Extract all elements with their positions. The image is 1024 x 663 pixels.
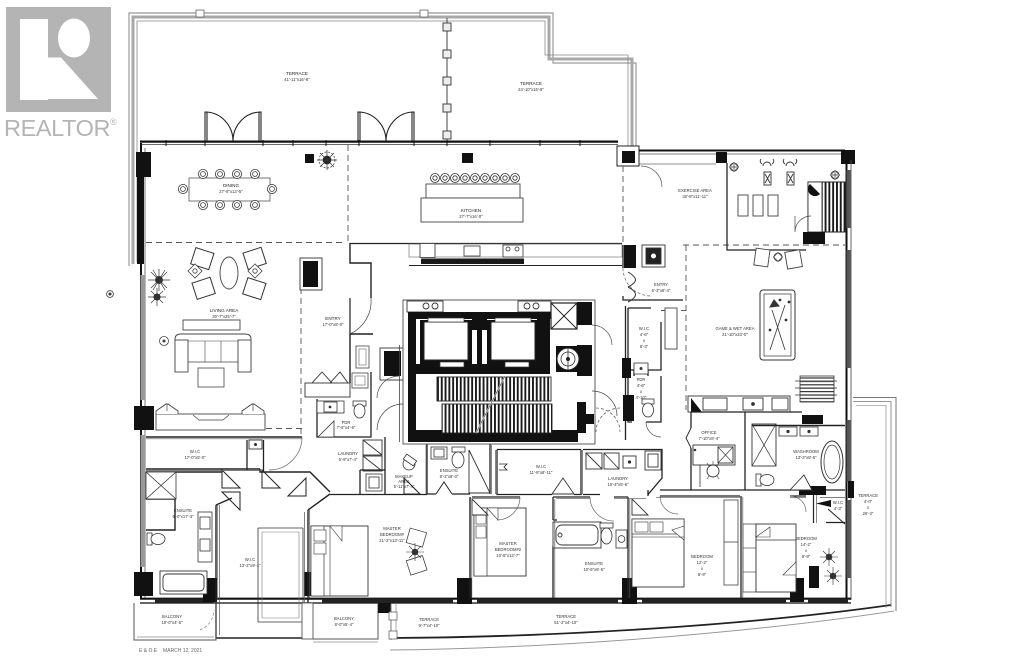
svg-text:W.I.C: W.I.C (536, 464, 546, 469)
svg-text:BEDROOM#: BEDROOM# (380, 532, 405, 537)
svg-text:BALCONY: BALCONY (162, 614, 182, 619)
svg-text:TERRACE: TERRACE (556, 614, 576, 619)
svg-text:TERRACE: TERRACE (858, 493, 878, 498)
svg-text:24'-10"x16'-8": 24'-10"x16'-8" (518, 87, 544, 92)
svg-text:8'-0"x5'-4": 8'-0"x5'-4" (335, 622, 354, 627)
svg-text:10'-6"x6'-6": 10'-6"x6'-6" (583, 567, 605, 572)
svg-text:27'-8"x13'-5": 27'-8"x13'-5" (219, 189, 243, 194)
svg-text:21'-2"x13'-11": 21'-2"x13'-11" (379, 538, 405, 543)
svg-text:LAUNDRY: LAUNDRY (608, 476, 628, 481)
svg-text:6'-3"x8'-4": 6'-3"x8'-4" (652, 288, 671, 293)
svg-text:DINING: DINING (223, 183, 240, 188)
svg-text:5'-9"x7'-4": 5'-9"x7'-4" (339, 457, 358, 462)
svg-text:8'-3": 8'-3" (640, 344, 649, 349)
svg-text:27'-7"x16'-0": 27'-7"x16'-0" (459, 214, 483, 219)
svg-text:E & O.E: E & O.E (139, 648, 158, 654)
svg-text:51'-2"x4'-10": 51'-2"x4'-10" (554, 620, 578, 625)
svg-text:17'-0"x5'-0": 17'-0"x5'-0" (184, 455, 206, 460)
svg-text:BALCONY: BALCONY (334, 616, 354, 621)
svg-text:BEDROOM: BEDROOM (691, 554, 713, 559)
svg-text:10'-4"x5'-6": 10'-4"x5'-6" (607, 482, 629, 487)
svg-text:REALTOR®: REALTOR® (4, 115, 117, 141)
svg-text:WASHROOM: WASHROOM (793, 449, 819, 454)
svg-text:ENSUITE: ENSUITE (585, 561, 603, 566)
svg-text:13'-3"x8'-6": 13'-3"x8'-6" (795, 455, 817, 460)
svg-text:4'-3": 4'-3" (834, 506, 843, 511)
svg-text:LIVING AREA: LIVING AREA (210, 308, 240, 313)
svg-text:9'-7"x4'-10": 9'-7"x4'-10" (418, 623, 440, 628)
svg-text:14'-2": 14'-2" (801, 542, 812, 547)
svg-text:EXERCISE AREA: EXERCISE AREA (678, 188, 712, 193)
svg-text:BEDROOM: BEDROOM (795, 536, 817, 541)
svg-text:21'-10"x23'-0": 21'-10"x23'-0" (722, 332, 748, 337)
svg-text:5'-11"x7'-4": 5'-11"x7'-4" (394, 484, 415, 489)
svg-text:11'-9"x8'-11": 11'-9"x8'-11" (530, 470, 553, 475)
svg-text:6'-0"x17'-3": 6'-0"x17'-3" (172, 514, 194, 519)
svg-text:8'-9": 8'-9" (698, 572, 707, 577)
svg-text:13'-2"x9'-1": 13'-2"x9'-1" (239, 563, 261, 568)
svg-text:TERRACE: TERRACE (419, 617, 439, 622)
svg-text:8'-9": 8'-9" (802, 554, 811, 559)
svg-text:30'-8"x11'-11": 30'-8"x11'-11" (682, 194, 708, 199)
svg-text:PDR: PDR (637, 377, 646, 382)
svg-text:26'-3": 26'-3" (863, 511, 874, 516)
svg-text:4'-6": 4'-6" (640, 332, 649, 337)
svg-text:BEDROOM#2: BEDROOM#2 (495, 547, 522, 552)
svg-text:4'-0": 4'-0" (864, 499, 873, 504)
svg-text:W.I.C: W.I.C (833, 500, 843, 505)
svg-text:7'-10"x8'-4": 7'-10"x8'-4" (698, 436, 720, 441)
svg-text:OFFICE: OFFICE (701, 430, 717, 435)
svg-text:TERRACE: TERRACE (520, 81, 542, 86)
svg-text:4'-6": 4'-6" (637, 383, 646, 388)
svg-text:MASTER: MASTER (383, 526, 400, 531)
svg-text:MARCH 12, 2021: MARCH 12, 2021 (163, 648, 202, 654)
svg-text:30'-7"x25'-7": 30'-7"x25'-7" (212, 314, 236, 319)
svg-text:ENSUITE: ENSUITE (174, 508, 192, 513)
svg-text:LAUNDRY: LAUNDRY (338, 451, 358, 456)
svg-text:8'-3"x8'-0": 8'-3"x8'-0" (440, 474, 459, 479)
svg-text:W.I.C: W.I.C (245, 557, 255, 562)
svg-text:7'-6"x4'-6": 7'-6"x4'-6" (337, 425, 356, 430)
svg-text:ENTRY: ENTRY (325, 316, 341, 321)
svg-text:W.I.C: W.I.C (639, 326, 649, 331)
svg-text:10'-0"x4'-5": 10'-0"x4'-5" (161, 620, 183, 625)
svg-text:GAME & WET AREA: GAME & WET AREA (715, 326, 754, 331)
svg-text:MASTER: MASTER (499, 541, 516, 546)
svg-text:TERRACE: TERRACE (286, 71, 308, 76)
svg-text:10'-8"x13'-7": 10'-8"x13'-7" (496, 553, 520, 558)
svg-text:KITCHEN: KITCHEN (461, 208, 481, 213)
svg-text:ENSUITE: ENSUITE (440, 468, 458, 473)
svg-text:17'-0"x8'-0": 17'-0"x8'-0" (322, 322, 344, 327)
svg-text:41'-11"x16'-8": 41'-11"x16'-8" (284, 77, 310, 82)
svg-text:W.I.C: W.I.C (190, 449, 200, 454)
svg-text:ENTRY: ENTRY (654, 282, 668, 287)
svg-text:12'-2": 12'-2" (697, 560, 708, 565)
